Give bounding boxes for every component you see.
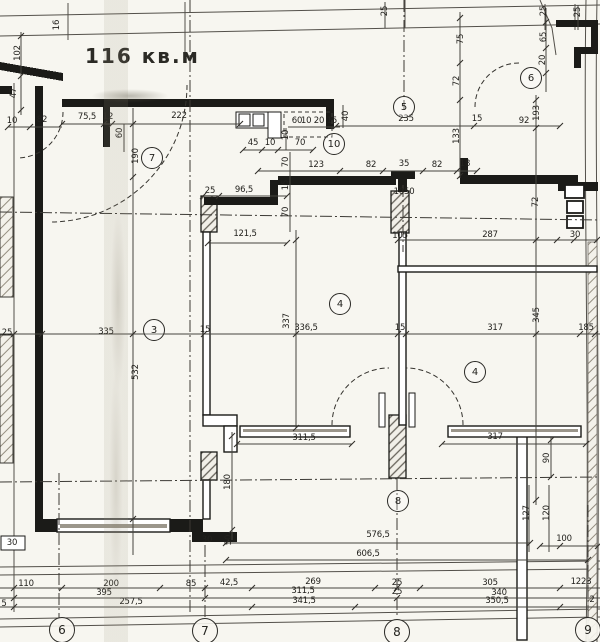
- dimension-label: 110: [18, 580, 34, 589]
- label-layer: 116 кв.м 1610247108275,51260222190256010…: [0, 0, 600, 642]
- dimension-label: 10 20 15: [301, 117, 337, 126]
- dimension-label: 82: [37, 116, 47, 125]
- dimension-label: 1223: [571, 578, 592, 587]
- dimension-label: 341,5: [292, 597, 315, 606]
- dimension-label: 25: [205, 187, 215, 196]
- dimension-label: 15: [282, 180, 291, 190]
- dimension-label: 105: [392, 232, 408, 241]
- dimension-label: 70: [282, 207, 291, 217]
- dimension-label: 120: [543, 505, 552, 521]
- axis-grid-bubble: 9: [575, 617, 600, 642]
- room-number-marker: 3: [143, 319, 165, 341]
- dimension-label: 317: [487, 324, 503, 333]
- dimension-label: 15: [395, 324, 405, 333]
- room-number-marker: 5: [393, 96, 415, 118]
- dimension-label: 287: [482, 231, 498, 240]
- dimension-label: 121,5: [233, 230, 256, 239]
- dimension-label: 75: [457, 34, 466, 44]
- dimension-label: 15: [200, 326, 210, 335]
- dimension-label: 532: [132, 364, 141, 380]
- dimension-label: 257,5: [119, 598, 142, 607]
- dimension-label: 311,5: [292, 434, 315, 443]
- room-number-marker: 8: [387, 490, 409, 512]
- axis-grid-bubble: 8: [384, 619, 410, 642]
- dimension-label: 336,5: [294, 324, 317, 333]
- dimension-label: 90: [543, 453, 552, 463]
- room-number-marker: 7: [141, 147, 163, 169]
- room-number-marker: 6: [520, 67, 542, 89]
- dimension-label: 70: [295, 139, 305, 148]
- dimension-label: 35: [399, 160, 409, 169]
- dimension-label: 123: [308, 161, 324, 170]
- dimension-label: 85: [186, 580, 196, 589]
- dimension-label: 82: [366, 161, 376, 170]
- dimension-label: 42,5: [220, 579, 238, 588]
- axis-grid-bubble: 6: [49, 617, 75, 642]
- dimension-label: 311,5: [291, 587, 314, 596]
- dimension-label: 102: [14, 45, 23, 61]
- dimension-label: 395: [96, 589, 112, 598]
- dimension-label: 10: [7, 117, 17, 126]
- dimension-label: 15: [472, 115, 482, 124]
- dimension-label: 25: [392, 588, 402, 597]
- dimension-label: 180: [224, 474, 233, 490]
- dimension-label: 1050: [394, 188, 415, 197]
- dimension-label: 335: [98, 328, 114, 337]
- dimension-label: 20: [539, 55, 548, 65]
- dimension-label: 16: [53, 20, 62, 30]
- dimension-label: 127: [523, 505, 532, 521]
- dimension-label: 82: [432, 161, 442, 170]
- dimension-label: 606,5: [356, 550, 379, 559]
- dimension-label: 60: [116, 128, 125, 138]
- dimension-label: 100: [556, 535, 572, 544]
- area-title: 116 кв.м: [85, 44, 200, 68]
- room-number-marker: 4: [464, 361, 486, 383]
- dimension-label: 193: [533, 105, 542, 121]
- dimension-label: 75,5: [78, 113, 96, 122]
- dimension-label: 47: [10, 88, 19, 98]
- dimension-label: 10: [282, 130, 291, 140]
- dimension-label: 25: [574, 7, 583, 17]
- dimension-label: 305: [482, 579, 498, 588]
- dimension-label: 350,5: [485, 597, 508, 606]
- dimension-label: 12: [103, 113, 113, 122]
- dimension-label: 25: [540, 6, 549, 16]
- dimension-label: 18: [460, 160, 470, 169]
- dimension-label: 317: [487, 433, 503, 442]
- dimension-label: 2: [589, 596, 594, 605]
- dimension-label: 65: [540, 32, 549, 42]
- dimension-label: 345: [533, 307, 542, 323]
- dimension-label: 190: [132, 148, 141, 164]
- dimension-label: 72: [453, 76, 462, 86]
- dimension-label: 133: [453, 128, 462, 144]
- room-number-marker: 10: [323, 133, 345, 155]
- dimension-label: 30: [570, 231, 580, 240]
- dimension-label: 45: [248, 139, 258, 148]
- dimension-label: 70: [282, 157, 291, 167]
- floor-plan-sheet: 116 кв.м 1610247108275,51260222190256010…: [0, 0, 600, 642]
- dimension-label: 72: [532, 197, 541, 207]
- room-number-marker: 4: [329, 293, 351, 315]
- dimension-label: 30: [7, 539, 17, 548]
- dimension-label: 185: [578, 324, 594, 333]
- dimension-label: 5: [1, 600, 6, 609]
- axis-grid-bubble: 7: [192, 618, 218, 642]
- dimension-label: 10: [265, 139, 275, 148]
- dimension-label: 25: [2, 329, 12, 338]
- dimension-label: 222: [171, 112, 187, 121]
- dimension-label: 337: [283, 313, 292, 329]
- dimension-label: 92: [519, 117, 529, 126]
- dimension-label: 40: [342, 111, 351, 121]
- dimension-label: 25: [381, 6, 390, 16]
- dimension-label: 30: [202, 536, 212, 545]
- dimension-label: 96,5: [235, 186, 253, 195]
- dimension-label: 576,5: [366, 531, 389, 540]
- dimension-label: 50: [225, 535, 234, 545]
